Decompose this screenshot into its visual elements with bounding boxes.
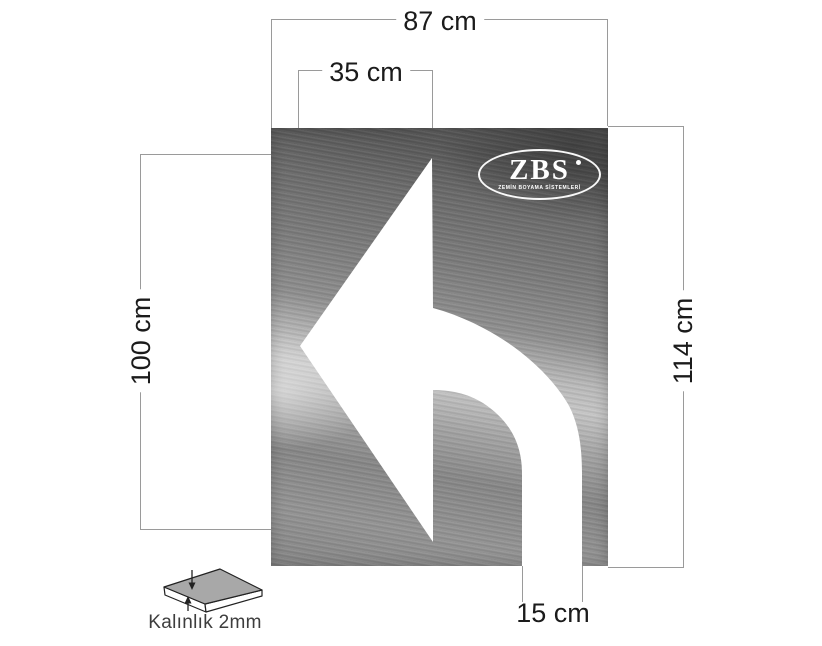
dim-35-right-stub: [432, 70, 433, 128]
dim-87-label: 87 cm: [396, 7, 484, 35]
zbs-logo: ZBS ZEMİN BOYAMA SİSTEMLERİ: [478, 149, 601, 200]
dim-100-top-stub: [140, 154, 271, 155]
dim-87-right-stub: [607, 19, 608, 126]
dim-114-bottom-stub: [608, 567, 684, 568]
dim-15-label: 15 cm: [509, 599, 597, 627]
dim-15-left-line: [522, 566, 523, 602]
thickness-slab-icon: [158, 565, 264, 615]
dim-87-left-stub: [271, 19, 272, 128]
zbs-logo-text: ZBS: [509, 158, 570, 183]
thickness-caption: Kalınlık 2mm: [148, 612, 261, 634]
dim-15-right-line: [582, 566, 583, 602]
dim-114-top-stub: [608, 126, 684, 127]
dim-100-label: 100 cm: [127, 290, 155, 393]
dim-114-label: 114 cm: [669, 291, 697, 392]
logo-trademark-dot: [576, 160, 581, 165]
diagram-canvas: ZBS ZEMİN BOYAMA SİSTEMLERİ 87 cm 35 cm …: [0, 0, 822, 646]
dim-35-label: 35 cm: [322, 58, 410, 86]
stencil-plate: ZBS ZEMİN BOYAMA SİSTEMLERİ: [271, 128, 608, 566]
dim-100-bottom-stub: [140, 529, 271, 530]
dim-35-left-stub: [298, 70, 299, 128]
